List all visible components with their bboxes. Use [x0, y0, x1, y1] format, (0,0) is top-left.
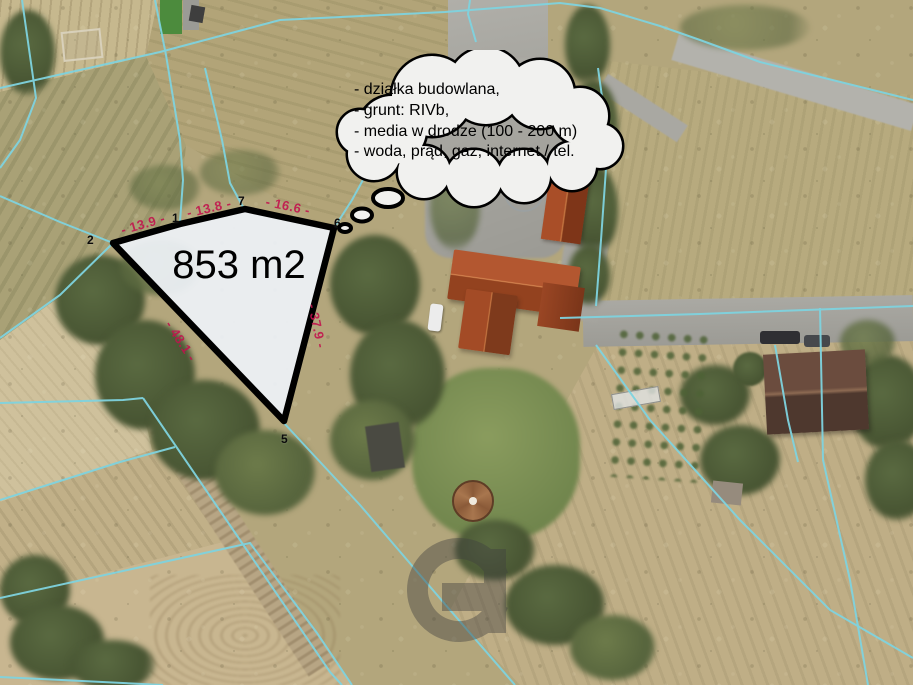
point-label-1: 1	[172, 211, 179, 225]
point-label-5: 5	[281, 432, 288, 446]
callout-text: - działka budowlana, - grunt: RIVb, - me…	[354, 80, 606, 163]
point-label-7: 7	[238, 194, 245, 208]
callout-line-3: - media w drodze (100 - 200 m)	[354, 122, 606, 143]
aerial-photo: 853 m2 2 1 7 6 5 - 13.9 - - 13.8 - - 16.…	[0, 0, 913, 685]
callout-line-1: - działka budowlana,	[354, 80, 606, 101]
point-label-2: 2	[87, 233, 94, 247]
thought-bubbles	[339, 189, 403, 232]
callout-line-2: - grunt: RIVb,	[354, 101, 606, 122]
callout-line-4: - woda, prąd, gaz, internet / tel.	[354, 142, 606, 163]
plot-area-label: 853 m2	[164, 243, 314, 288]
